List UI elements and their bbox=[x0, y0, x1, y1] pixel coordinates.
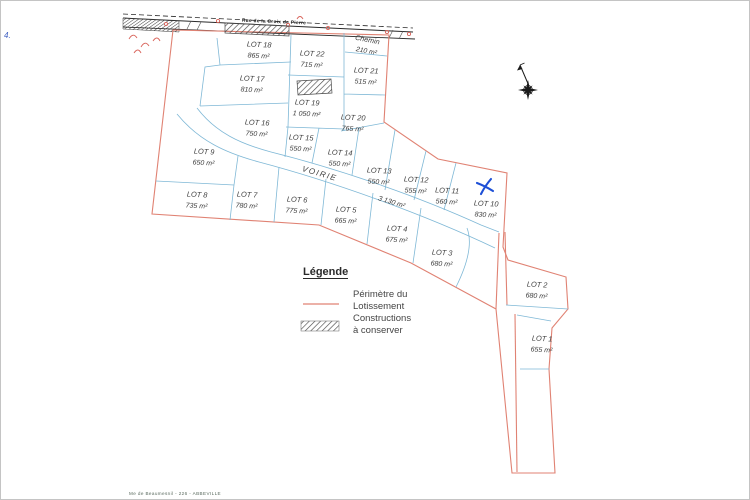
lot-label: LOT 13 bbox=[367, 165, 393, 175]
lot-label: LOT 14 bbox=[328, 147, 353, 157]
footer-stamp-text: Me de Beaumesnil - 226 - ABBEVILLE bbox=[129, 491, 221, 496]
construction-rect-lot19 bbox=[297, 79, 332, 95]
chemin-area: 210 m² bbox=[354, 46, 378, 57]
legend-title: Légende bbox=[303, 266, 348, 278]
access-strip-lower-right-edge bbox=[515, 314, 517, 472]
lot-label: 780 m² bbox=[235, 202, 258, 210]
lot-label: LOT 21 bbox=[354, 65, 379, 75]
lot-label: 665 m² bbox=[334, 217, 357, 225]
lot-label: LOT 7 bbox=[237, 189, 259, 199]
lot-label: 750 m² bbox=[245, 130, 268, 138]
legend-item-2-line-1: Constructions bbox=[353, 313, 411, 324]
lot-label: 555 m² bbox=[404, 187, 427, 195]
lot-label: LOT 10 bbox=[474, 198, 500, 208]
north-arrow-icon bbox=[517, 63, 538, 100]
lot-label: LOT 15 bbox=[289, 132, 315, 142]
lot-label: 735 m² bbox=[185, 202, 208, 210]
lot-label: 1 050 m² bbox=[293, 110, 322, 118]
lot-label: LOT 16 bbox=[245, 117, 271, 127]
legend: Légende Périmètre du Lotissement Constru… bbox=[301, 266, 411, 336]
lot-label: 655 m² bbox=[530, 346, 553, 354]
lot-label: LOT 5 bbox=[336, 204, 358, 214]
lot-label: LOT 6 bbox=[287, 194, 309, 204]
legend-item-1-line-2: Lotissement bbox=[353, 301, 405, 312]
lot-label: 680 m² bbox=[525, 292, 548, 300]
lot-label: 680 m² bbox=[430, 260, 453, 268]
access-strip-left-edge bbox=[496, 233, 499, 309]
lot-label: LOT 11 bbox=[435, 185, 460, 195]
lot-label: 550 m² bbox=[367, 178, 390, 186]
lot-label: LOT 9 bbox=[194, 146, 215, 156]
lot-label: LOT 8 bbox=[187, 189, 209, 199]
access-strip-right-edge bbox=[505, 232, 507, 305]
perimeter-outline bbox=[152, 30, 568, 473]
lot-label: LOT 2 bbox=[527, 279, 548, 289]
chemin-label: Chemin 210 m² bbox=[354, 33, 380, 57]
lot-label: 550 m² bbox=[289, 145, 312, 153]
lot-label: 865 m² bbox=[247, 52, 270, 60]
lot-label: LOT 19 bbox=[295, 97, 320, 107]
scanned-subdivision-plan: Rue de la Croix de Pierre LOT 165 bbox=[0, 0, 750, 500]
lot-label: 515 m² bbox=[354, 78, 377, 86]
lot-label: LOT 17 bbox=[240, 73, 266, 83]
plan-svg: Rue de la Croix de Pierre LOT 165 bbox=[1, 1, 750, 500]
lot-label: 550 m² bbox=[328, 160, 351, 168]
lot-label: LOT 1 bbox=[532, 333, 553, 343]
legend-construction-swatch bbox=[301, 321, 339, 331]
lot-label: LOT 18 bbox=[247, 39, 273, 49]
legend-item-1-line-1: Périmètre du bbox=[353, 289, 407, 300]
lot-label: LOT 12 bbox=[404, 174, 429, 184]
lot-label: 765 m² bbox=[341, 125, 364, 133]
lot-label: 650 m² bbox=[192, 159, 215, 167]
lot-label: 715 m² bbox=[300, 61, 323, 69]
corner-handwritten-mark: 4. bbox=[4, 31, 11, 40]
lot-label: LOT 3 bbox=[432, 247, 454, 257]
lot-label: LOT 22 bbox=[300, 48, 325, 58]
lot-label: 810 m² bbox=[240, 86, 263, 94]
lot-label: 775 m² bbox=[285, 207, 308, 215]
lot-label: 675 m² bbox=[385, 236, 408, 244]
lot-label: LOT 4 bbox=[387, 223, 408, 233]
lot-label: 830 m² bbox=[474, 211, 497, 219]
voirie-area: 3 130 m² bbox=[377, 195, 406, 210]
blue-x-mark bbox=[477, 179, 493, 194]
legend-item-2-line-2: à conserver bbox=[353, 325, 403, 336]
lot-label: 560 m² bbox=[435, 198, 458, 206]
lot-label: LOT 20 bbox=[341, 112, 367, 122]
